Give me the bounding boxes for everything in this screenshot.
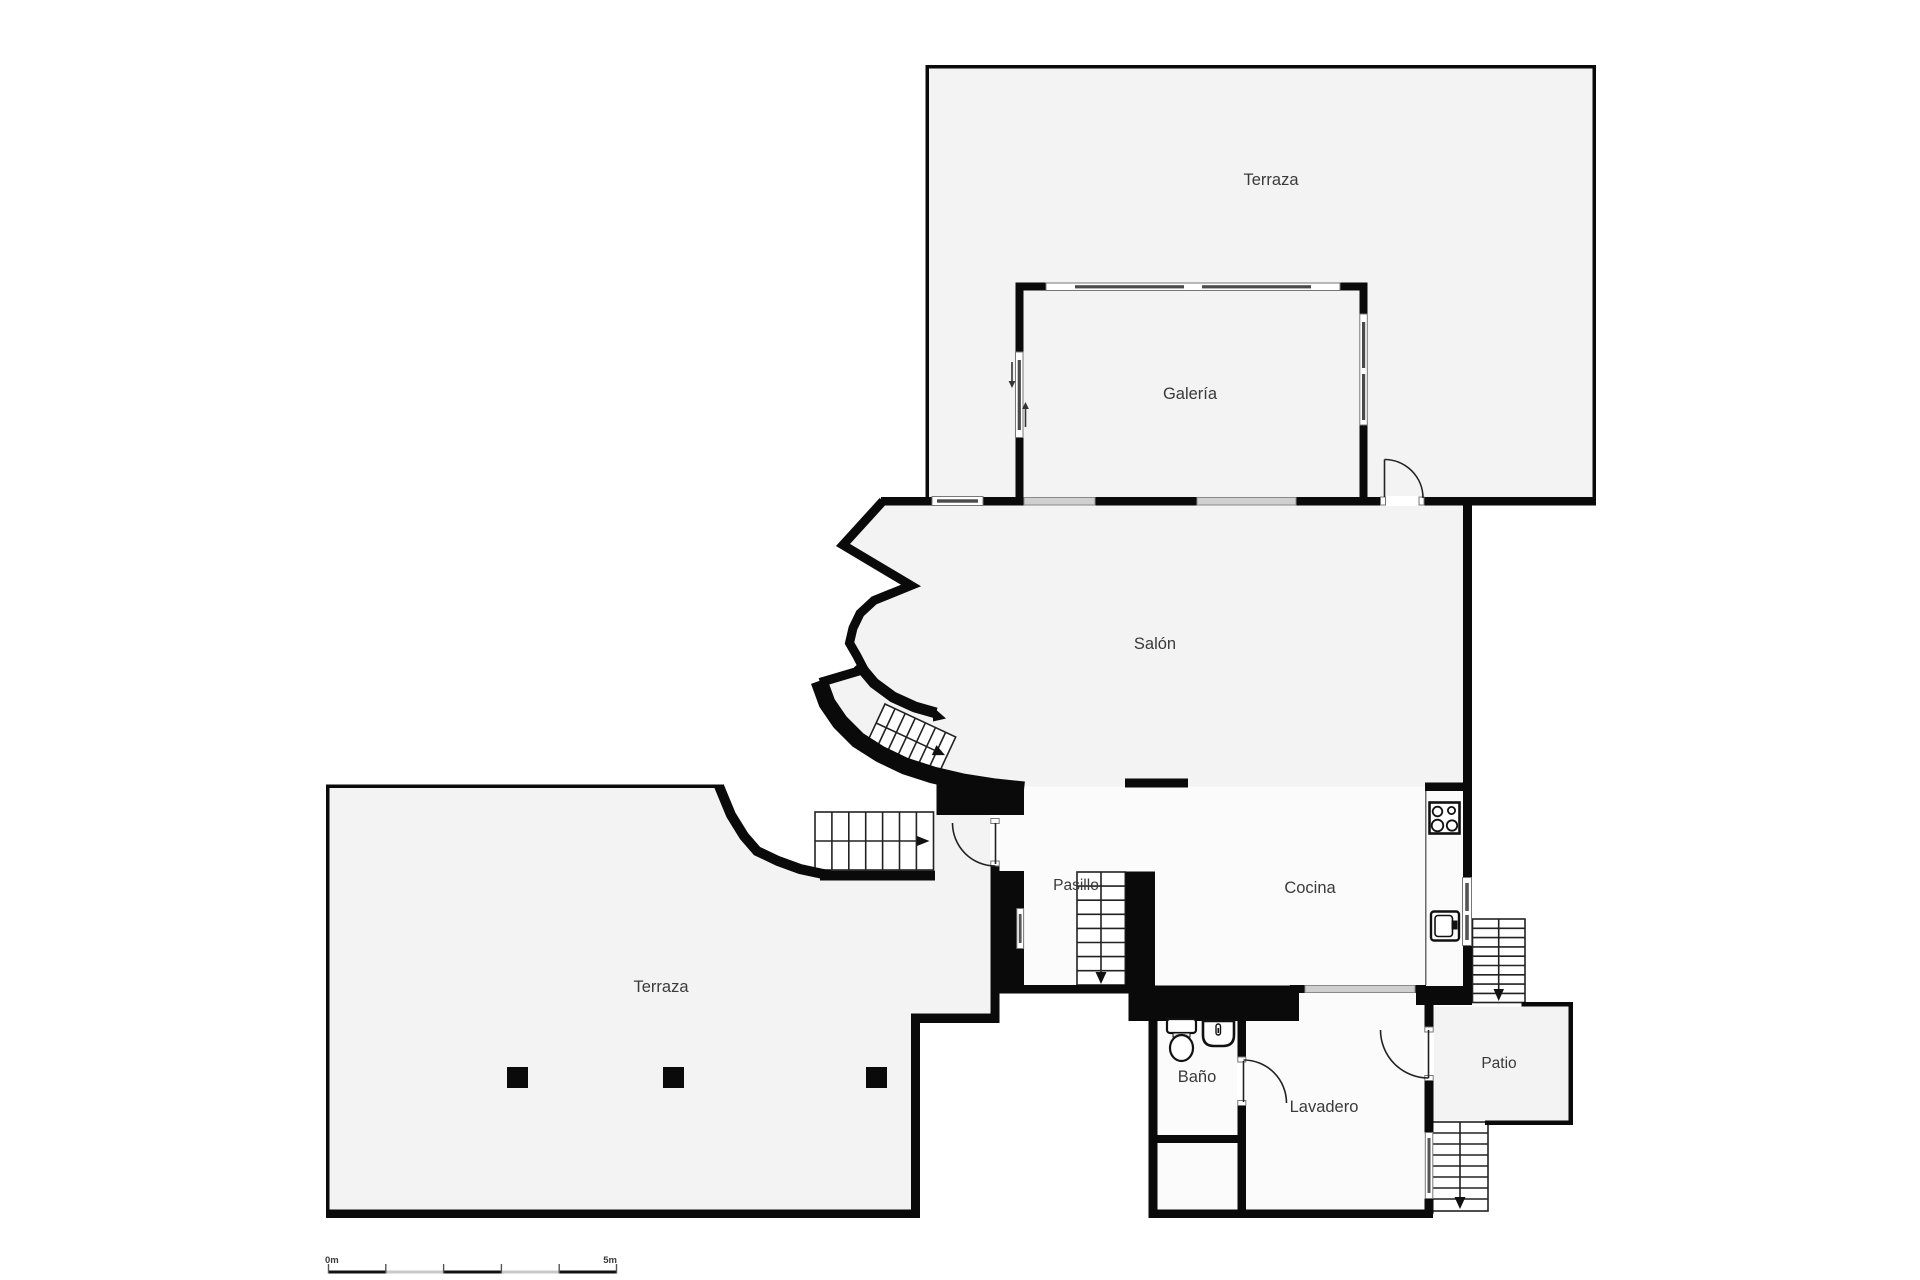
svg-text:Patio: Patio: [1481, 1055, 1516, 1072]
svg-text:5m: 5m: [603, 1255, 617, 1266]
svg-text:Pasillo: Pasillo: [1053, 877, 1099, 894]
svg-text:Cocina: Cocina: [1284, 879, 1336, 897]
svg-text:Galería: Galería: [1163, 385, 1218, 403]
svg-text:Terraza: Terraza: [1243, 171, 1299, 189]
svg-text:Salón: Salón: [1134, 635, 1176, 653]
svg-text:Terraza: Terraza: [633, 978, 689, 996]
svg-text:Baño: Baño: [1178, 1068, 1217, 1086]
svg-text:Lavadero: Lavadero: [1290, 1098, 1359, 1116]
svg-text:0m: 0m: [325, 1255, 339, 1266]
